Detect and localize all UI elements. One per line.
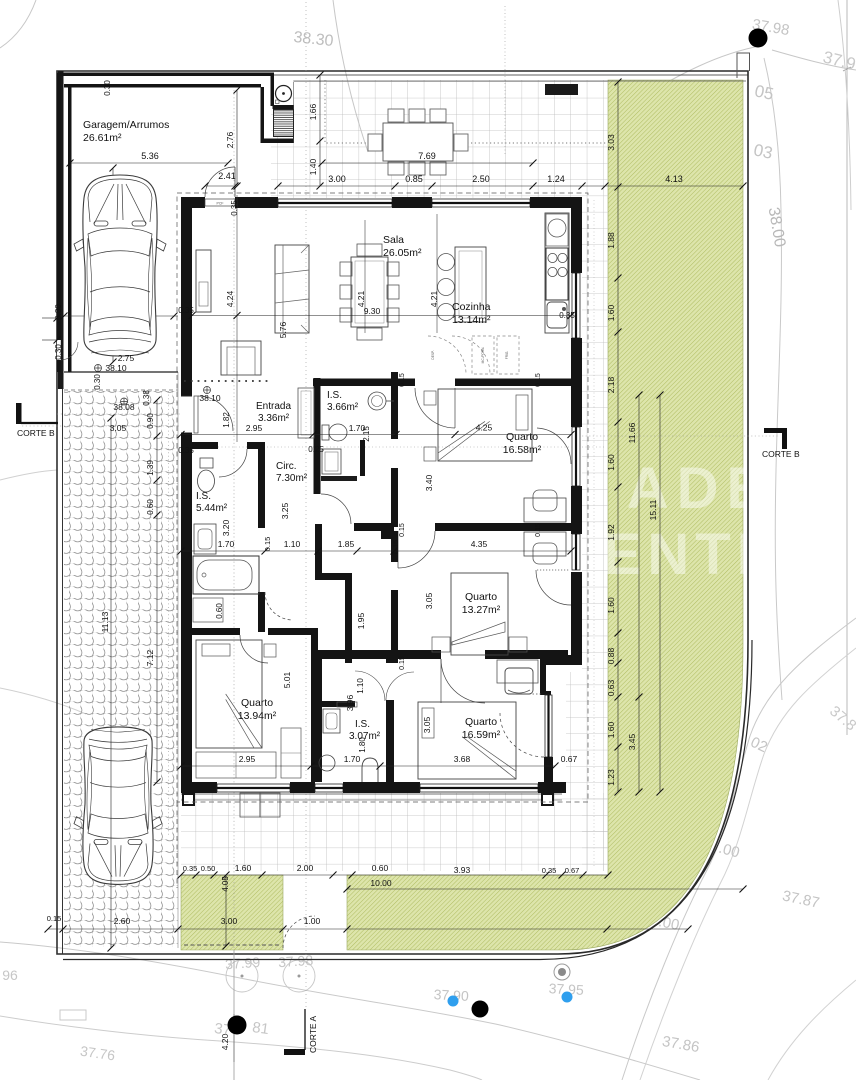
svg-text:9.30: 9.30 [364, 306, 381, 316]
svg-text:7.69: 7.69 [418, 151, 436, 161]
svg-text:I.S.: I.S. [355, 719, 370, 730]
svg-text:96: 96 [2, 967, 18, 983]
svg-text:0.35: 0.35 [542, 866, 557, 875]
svg-text:.00: .00 [657, 913, 681, 934]
svg-text:5.44m²: 5.44m² [196, 503, 228, 514]
svg-text:1.60: 1.60 [606, 597, 616, 614]
svg-text:11.66: 11.66 [627, 422, 637, 443]
svg-text:2.75: 2.75 [118, 353, 135, 363]
svg-text:7.30m²: 7.30m² [276, 473, 308, 484]
svg-text:13.27m²: 13.27m² [462, 604, 501, 616]
svg-text:4.13: 4.13 [665, 174, 683, 184]
svg-text:1.70: 1.70 [344, 754, 361, 764]
svg-text:5.36: 5.36 [141, 151, 159, 161]
svg-text:3.36m²: 3.36m² [258, 413, 290, 424]
svg-text:0.15: 0.15 [535, 373, 542, 387]
svg-text:0.60: 0.60 [372, 863, 389, 873]
svg-text:1.82: 1.82 [222, 412, 231, 428]
svg-text:3.45: 3.45 [627, 733, 637, 750]
svg-text:ENTE: ENTE [603, 522, 782, 587]
svg-text:2.15: 2.15 [362, 426, 371, 442]
svg-text:4.24: 4.24 [225, 290, 235, 307]
svg-text:0.30: 0.30 [93, 374, 102, 390]
svg-text:3.96: 3.96 [345, 694, 355, 711]
svg-text:0.35: 0.35 [178, 446, 194, 455]
svg-text:FRIG.: FRIG. [505, 351, 509, 360]
svg-text:1.39: 1.39 [146, 460, 155, 476]
svg-text:2.60: 2.60 [114, 916, 131, 926]
svg-text:0.50: 0.50 [201, 864, 216, 873]
svg-text:Entrada: Entrada [256, 401, 291, 412]
svg-text:2.18: 2.18 [606, 376, 616, 393]
svg-text:3.20: 3.20 [221, 519, 231, 536]
svg-text:3.93: 3.93 [454, 865, 471, 875]
svg-text:38.10: 38.10 [199, 393, 221, 403]
svg-text:1.95: 1.95 [356, 612, 366, 629]
svg-text:10.00: 10.00 [370, 878, 392, 888]
svg-text:0.15: 0.15 [535, 523, 542, 537]
svg-text:2.00: 2.00 [297, 863, 314, 873]
svg-text:0.30: 0.30 [54, 304, 63, 320]
svg-text:0.30: 0.30 [103, 80, 112, 96]
svg-text:0.67: 0.67 [561, 754, 578, 764]
svg-text:0.15: 0.15 [263, 537, 272, 552]
svg-text:3.68: 3.68 [454, 754, 471, 764]
svg-text:1.24: 1.24 [547, 174, 565, 184]
svg-text:PCF: PCF [217, 202, 224, 206]
svg-text:1.88: 1.88 [606, 232, 616, 249]
svg-text:0.67: 0.67 [565, 866, 580, 875]
svg-text:3.66m²: 3.66m² [327, 402, 359, 413]
svg-text:3.00: 3.00 [328, 174, 346, 184]
svg-text:0.15: 0.15 [47, 914, 62, 923]
svg-text:0.63: 0.63 [606, 679, 616, 696]
svg-text:03: 03 [752, 140, 774, 163]
svg-text:3.00: 3.00 [221, 916, 238, 926]
svg-text:Sala: Sala [383, 234, 404, 246]
svg-text:1.60: 1.60 [606, 721, 616, 738]
svg-text:4.35: 4.35 [471, 539, 488, 549]
svg-text:1.60: 1.60 [606, 304, 616, 321]
svg-text:7.12: 7.12 [145, 649, 155, 666]
svg-text:0.38: 0.38 [142, 390, 151, 406]
svg-text:0.35: 0.35 [230, 200, 239, 216]
svg-text:0.35: 0.35 [183, 864, 198, 873]
svg-text:2.76: 2.76 [225, 131, 235, 148]
svg-text:2.95: 2.95 [246, 423, 263, 433]
svg-text:38.10: 38.10 [105, 363, 127, 373]
svg-text:Quarto: Quarto [465, 716, 497, 728]
svg-text:CORTE B: CORTE B [762, 449, 800, 459]
svg-text:3.05: 3.05 [110, 423, 127, 433]
svg-text:4.21: 4.21 [429, 290, 439, 307]
svg-text:37.8: 37.8 [826, 703, 856, 735]
svg-text:1.85: 1.85 [338, 539, 355, 549]
svg-text:1.70: 1.70 [218, 539, 235, 549]
svg-text:1.60: 1.60 [606, 454, 616, 471]
svg-text:I.S.: I.S. [196, 491, 211, 502]
svg-text:Quarto: Quarto [506, 431, 538, 443]
svg-text:0.25: 0.25 [308, 445, 324, 454]
svg-text:1.60: 1.60 [235, 863, 252, 873]
svg-text:1.23: 1.23 [606, 769, 616, 786]
svg-text:0.60: 0.60 [215, 603, 224, 619]
svg-text:0.88: 0.88 [606, 647, 616, 664]
svg-text:26.61m²: 26.61m² [83, 132, 122, 144]
svg-text:3.05: 3.05 [422, 716, 432, 733]
svg-text:Quarto: Quarto [241, 697, 273, 709]
svg-text:4.25: 4.25 [476, 423, 493, 433]
svg-text:Circ.: Circ. [276, 461, 297, 472]
svg-text:I.S.: I.S. [327, 390, 342, 401]
svg-text:05: 05 [753, 81, 775, 104]
svg-text:3.40: 3.40 [424, 474, 434, 491]
svg-text:DESP.: DESP. [431, 350, 435, 359]
svg-text:1.80: 1.80 [358, 737, 367, 753]
svg-text:2.95: 2.95 [239, 754, 256, 764]
svg-text:37.87: 37.87 [781, 887, 821, 911]
svg-text:3.25: 3.25 [280, 502, 290, 519]
svg-text:0.60: 0.60 [146, 499, 155, 515]
svg-text:1.66: 1.66 [308, 103, 318, 120]
svg-text:37.9: 37.9 [821, 47, 856, 73]
svg-text:37.86: 37.86 [661, 1033, 701, 1056]
svg-text:1.40: 1.40 [308, 158, 318, 175]
svg-text:81: 81 [251, 1019, 270, 1038]
svg-text:5.76: 5.76 [278, 321, 288, 338]
svg-text:0.15: 0.15 [399, 523, 406, 537]
svg-text:38.00: 38.00 [765, 206, 789, 248]
svg-text:26.05m²: 26.05m² [383, 247, 422, 259]
svg-text:5.01: 5.01 [282, 671, 292, 688]
svg-text:0.90: 0.90 [146, 413, 155, 429]
svg-text:16.58m²: 16.58m² [503, 444, 542, 456]
svg-text:1.92: 1.92 [606, 524, 616, 541]
svg-text:Cozinha: Cozinha [452, 301, 491, 313]
svg-text:1.10: 1.10 [356, 678, 365, 694]
svg-text:0.15: 0.15 [391, 540, 400, 555]
svg-text:37.99: 37.99 [225, 954, 261, 972]
svg-text:0.85: 0.85 [405, 174, 423, 184]
svg-text:3.05: 3.05 [424, 592, 434, 609]
svg-text:0.35: 0.35 [559, 311, 575, 320]
svg-text:16.59m²: 16.59m² [462, 729, 501, 741]
svg-text:0.35: 0.35 [178, 306, 194, 315]
svg-text:Garagem/Arrumos: Garagem/Arrumos [83, 119, 169, 131]
svg-text:2.41: 2.41 [218, 171, 236, 181]
svg-text:0.15: 0.15 [399, 656, 406, 670]
svg-text:4.21: 4.21 [356, 290, 366, 307]
svg-text:02: 02 [748, 734, 770, 756]
svg-text:1.00: 1.00 [304, 916, 321, 926]
svg-text:3.03: 3.03 [606, 134, 616, 151]
svg-text:0.30: 0.30 [54, 344, 63, 360]
svg-text:2.50: 2.50 [472, 174, 490, 184]
svg-text:11.13: 11.13 [100, 611, 110, 632]
svg-text:Quarto: Quarto [465, 591, 497, 603]
svg-text:38.30: 38.30 [293, 29, 335, 50]
svg-text:CORTE A: CORTE A [308, 1016, 318, 1053]
svg-text:MC./FORN.: MC./FORN. [481, 347, 485, 364]
svg-text:15.11: 15.11 [648, 499, 658, 520]
svg-text:CORTE B: CORTE B [17, 428, 55, 438]
svg-text:13.94m²: 13.94m² [238, 710, 277, 722]
svg-text:0.15: 0.15 [399, 373, 406, 387]
svg-text:37.76: 37.76 [79, 1043, 116, 1064]
svg-text:1.10: 1.10 [284, 539, 301, 549]
